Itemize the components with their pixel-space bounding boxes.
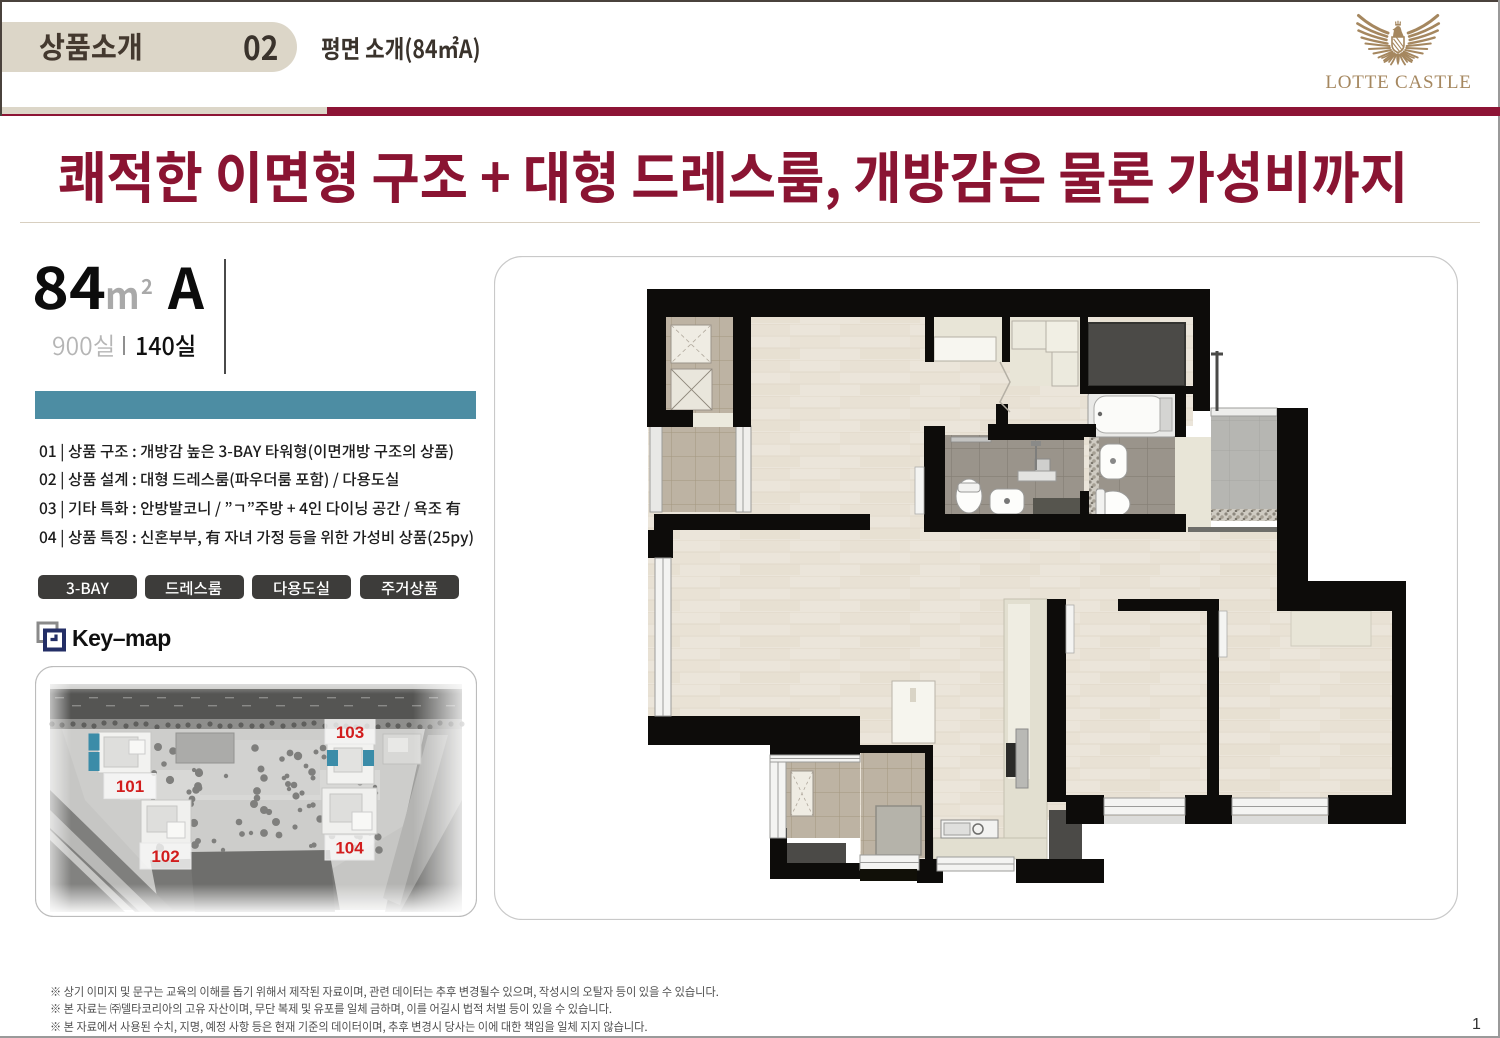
svg-text:103: 103 — [336, 723, 364, 742]
svg-text:102: 102 — [151, 847, 179, 866]
svg-text:101: 101 — [116, 777, 144, 796]
svg-text:104: 104 — [335, 839, 364, 858]
